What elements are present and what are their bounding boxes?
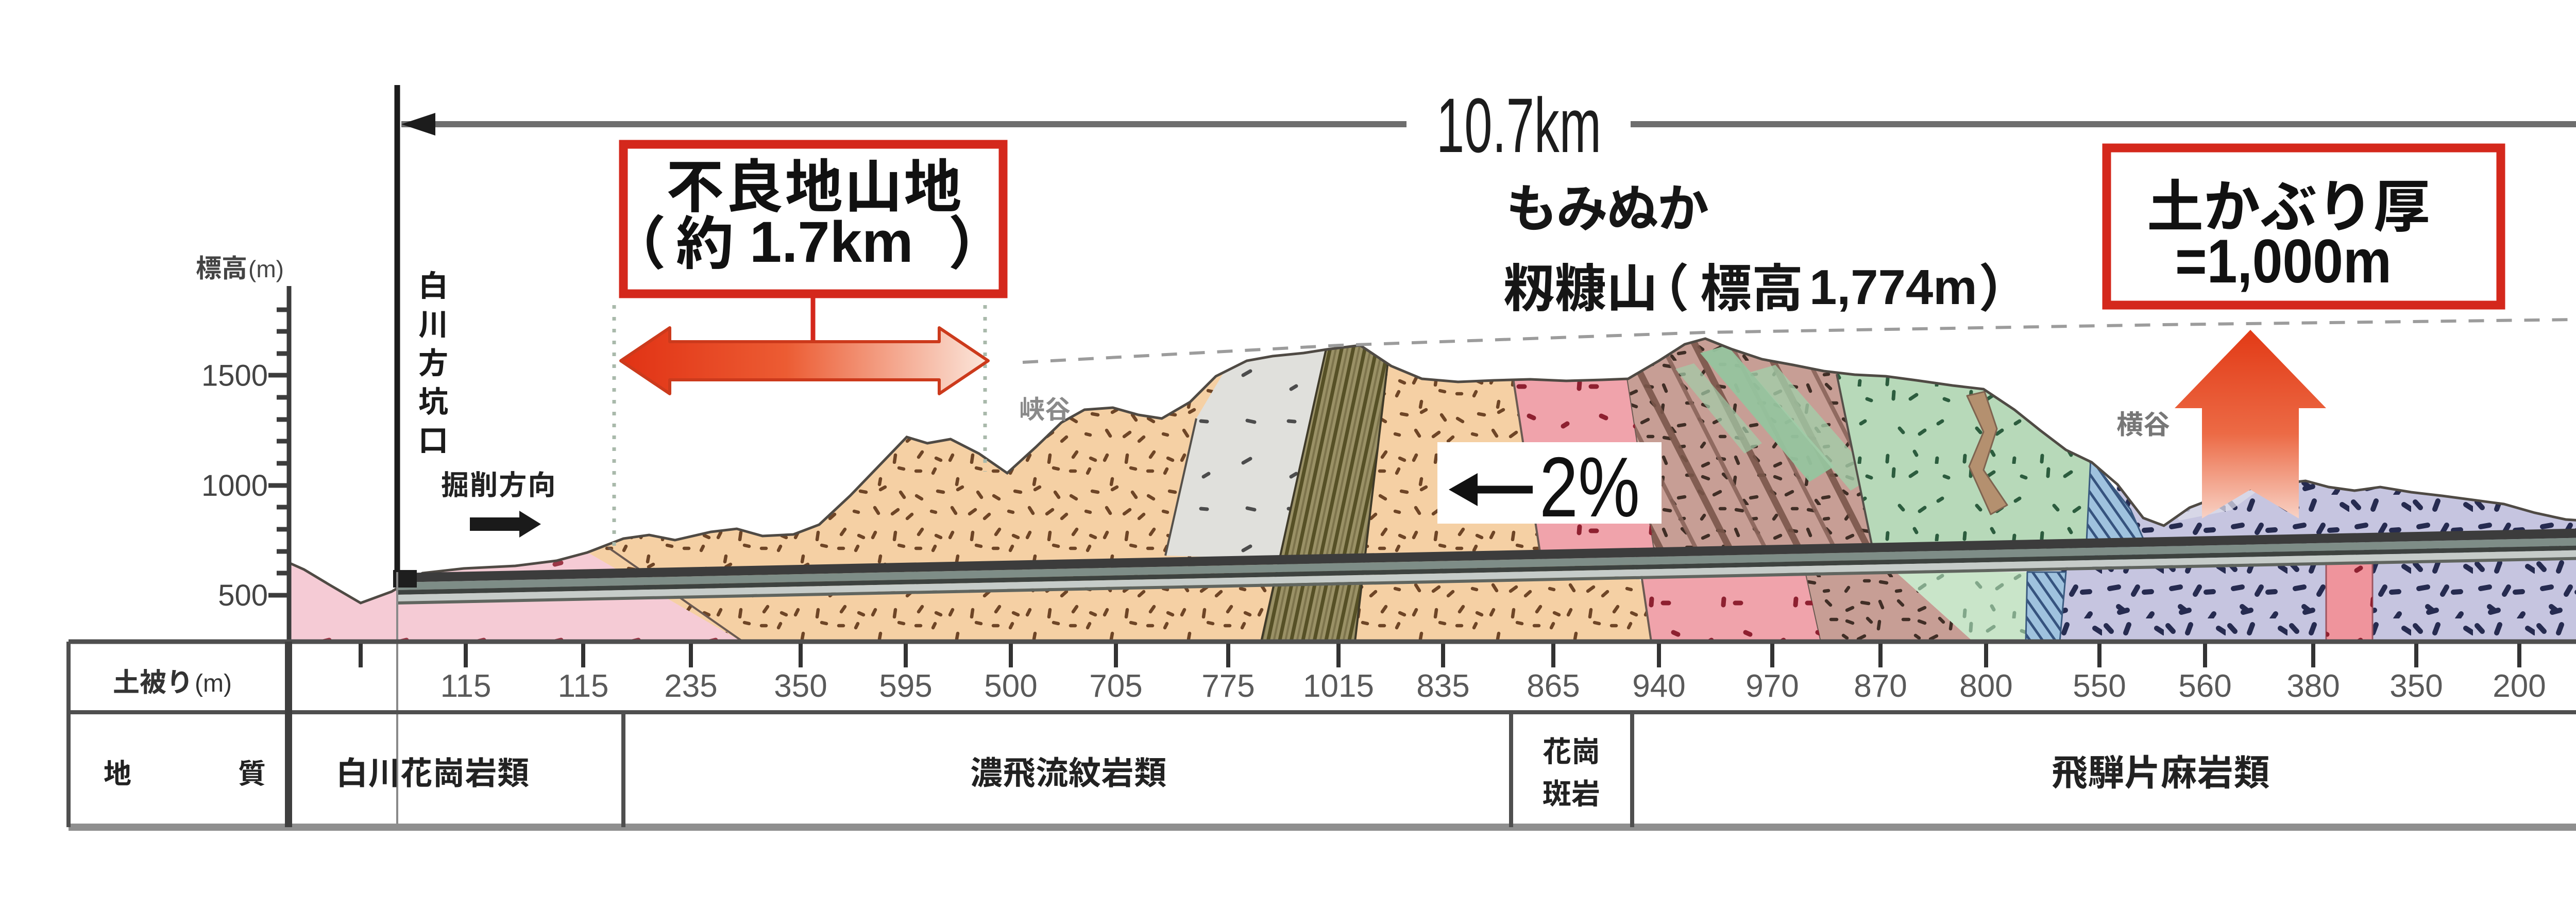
svg-text:970: 970 bbox=[1745, 668, 1799, 704]
svg-text:835: 835 bbox=[1416, 668, 1469, 704]
svg-text:870: 870 bbox=[1854, 668, 1907, 704]
svg-text:500: 500 bbox=[218, 579, 268, 612]
svg-text:(m): (m) bbox=[248, 256, 284, 282]
svg-text:2%: 2% bbox=[1539, 440, 1640, 534]
svg-text:350: 350 bbox=[2389, 668, 2443, 704]
svg-text:595: 595 bbox=[879, 668, 932, 704]
svg-text:1500: 1500 bbox=[201, 359, 268, 393]
svg-text:=1,000m: =1,000m bbox=[2175, 227, 2392, 296]
svg-text:705: 705 bbox=[1089, 668, 1142, 704]
svg-text:940: 940 bbox=[1632, 668, 1685, 704]
svg-text:560: 560 bbox=[2178, 668, 2231, 704]
svg-text:235: 235 bbox=[664, 668, 717, 704]
svg-text:1000: 1000 bbox=[201, 469, 268, 502]
svg-text:350: 350 bbox=[774, 668, 827, 704]
svg-text:380: 380 bbox=[2286, 668, 2340, 704]
svg-text:1,774m: 1,774m bbox=[1809, 260, 1977, 315]
svg-text:800: 800 bbox=[1959, 668, 2012, 704]
svg-text:(m): (m) bbox=[195, 670, 232, 697]
svg-text:550: 550 bbox=[2073, 668, 2126, 704]
svg-text:1.7km: 1.7km bbox=[750, 210, 913, 274]
svg-text:115: 115 bbox=[558, 668, 609, 704]
svg-text:115: 115 bbox=[440, 668, 492, 704]
svg-text:865: 865 bbox=[1527, 668, 1580, 704]
svg-text:500: 500 bbox=[984, 668, 1037, 704]
svg-text:200: 200 bbox=[2493, 668, 2546, 704]
svg-text:10.7km: 10.7km bbox=[1436, 82, 1601, 169]
svg-text:775: 775 bbox=[1201, 668, 1255, 704]
svg-text:1015: 1015 bbox=[1303, 668, 1374, 704]
